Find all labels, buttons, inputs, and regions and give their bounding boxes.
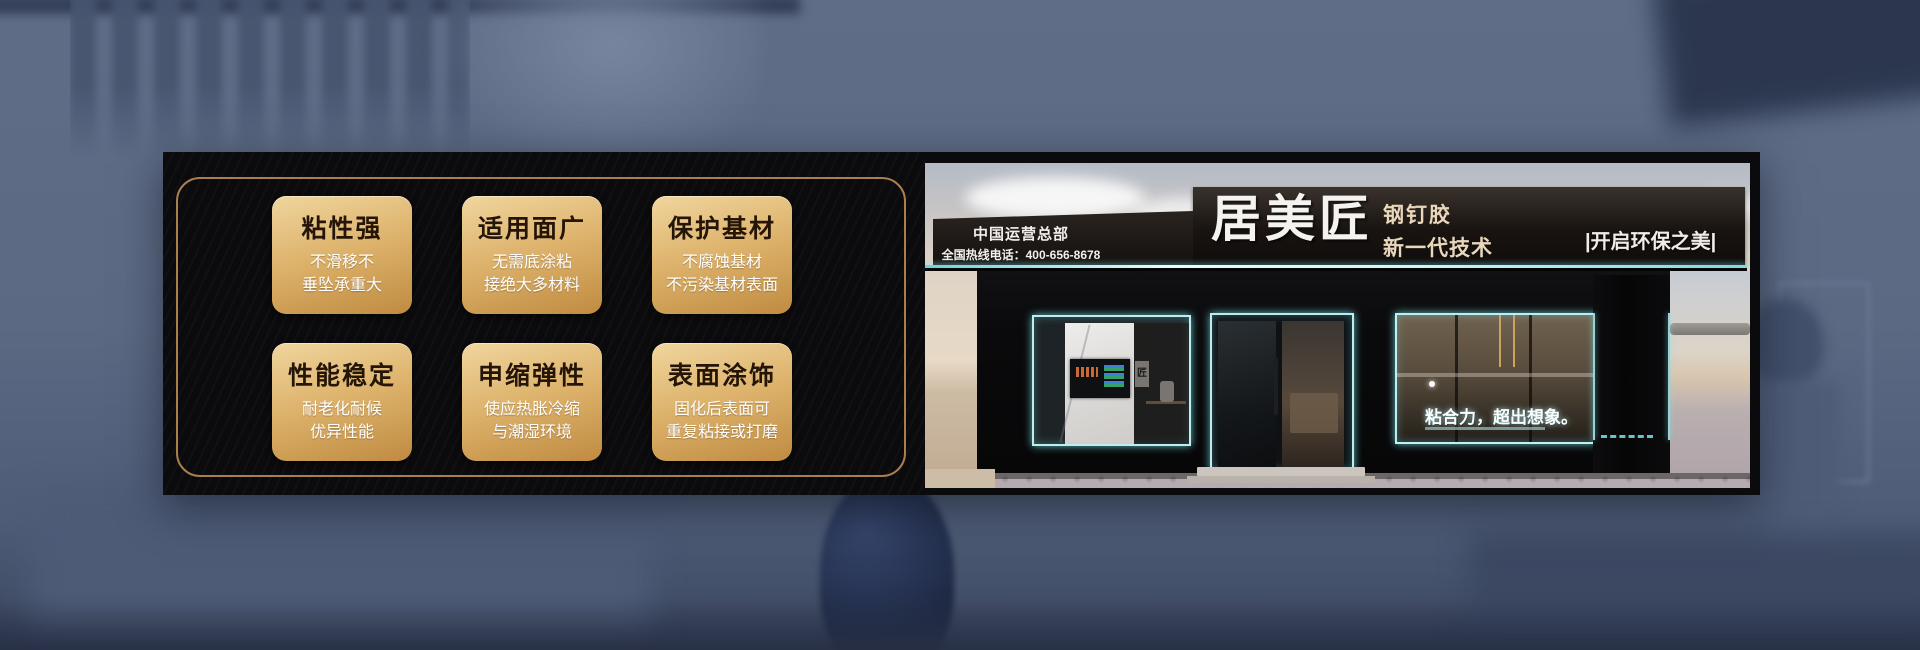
screen-content bbox=[1104, 365, 1124, 387]
door-interior-view bbox=[1290, 393, 1338, 433]
operations-hq-label: 中国运营总部 bbox=[933, 223, 1109, 244]
feature-card-title: 适用面广 bbox=[478, 209, 586, 245]
hotline-number: 全国热线电话：400-656-8678 bbox=[933, 246, 1109, 263]
feature-card-line: 固化后表面可 bbox=[674, 399, 770, 422]
feature-card-line: 不污染基材表面 bbox=[666, 275, 778, 298]
glass-tint bbox=[1134, 323, 1189, 444]
door-handle bbox=[1274, 357, 1278, 415]
screen-content bbox=[1076, 367, 1098, 377]
window-slogan: 粘合力，超出想象。 bbox=[1425, 403, 1605, 428]
feature-card-title: 粘性强 bbox=[301, 209, 382, 245]
entrance-step-lower bbox=[1187, 476, 1375, 483]
feature-card-line: 使应热胀冷缩 bbox=[484, 399, 580, 422]
entrance-door bbox=[1210, 313, 1354, 471]
brand-name: 居美匠 bbox=[1211, 193, 1373, 246]
feature-banner: 粘性强 不滑移不 垂坠承重大 适用面广 无需底涂粘 接绝大多材料 保护基材 不腐… bbox=[163, 152, 1760, 495]
feature-card-line: 与潮湿环境 bbox=[492, 422, 572, 445]
background-light-wall bbox=[430, 0, 760, 170]
feature-card-line: 垂坠承重大 bbox=[302, 275, 382, 298]
background-floor-shadow bbox=[0, 598, 1920, 650]
sand-strip bbox=[925, 469, 995, 488]
brand-subtitle-block: 钢钉胶 新一代技术 bbox=[1383, 199, 1493, 262]
feature-card-stable: 性能稳定 耐老化耐候 优异性能 bbox=[272, 343, 412, 461]
feature-card-protect-substrate: 保护基材 不腐蚀基材 不污染基材表面 bbox=[652, 196, 792, 314]
entrance-step bbox=[1197, 467, 1365, 476]
neon-dashes bbox=[1601, 435, 1653, 438]
feature-card-line: 重复粘接或打磨 bbox=[666, 422, 778, 445]
storefront-photo: 中国运营总部 全国热线电话：400-656-8678 居美匠 钢钉胶 新一代技术… bbox=[925, 163, 1750, 488]
neon-edge bbox=[1668, 313, 1670, 440]
background-plant-silhouette bbox=[1750, 298, 1824, 388]
operations-hq-block: 中国运营总部 全国热线电话：400-656-8678 bbox=[933, 223, 1109, 263]
feature-card-line: 接绝大多材料 bbox=[484, 275, 580, 298]
feature-card-surface-finish: 表面涂饰 固化后表面可 重复粘接或打磨 bbox=[652, 343, 792, 461]
feature-card-elastic: 申缩弹性 使应热胀冷缩 与潮湿环境 bbox=[462, 343, 602, 461]
promo-banner-stage: 粘性强 不滑移不 垂坠承重大 适用面广 无需底涂粘 接绝大多材料 保护基材 不腐… bbox=[0, 0, 1920, 650]
product-name: 钢钉胶 bbox=[1383, 199, 1493, 229]
facade-column-right bbox=[1593, 275, 1670, 473]
feature-card-wide-use: 适用面广 无需底涂粘 接绝大多材料 bbox=[462, 196, 602, 314]
feature-card-line: 优异性能 bbox=[310, 422, 374, 445]
eco-slogan: |开启环保之美| bbox=[1585, 225, 1743, 254]
feature-card-line: 无需底涂粘 bbox=[492, 252, 572, 275]
feature-card-line: 不滑移不 bbox=[310, 252, 374, 275]
feature-card-line: 不腐蚀基材 bbox=[682, 252, 762, 275]
feature-card-line: 耐老化耐候 bbox=[302, 399, 382, 422]
door-leaf-left bbox=[1218, 321, 1276, 469]
hanging-rod bbox=[1499, 315, 1501, 367]
bench bbox=[1670, 323, 1750, 335]
feature-card-title: 申缩弹性 bbox=[478, 356, 586, 392]
feature-card-adhesion: 粘性强 不滑移不 垂坠承重大 bbox=[272, 196, 412, 314]
shelf-band bbox=[1397, 373, 1595, 377]
background-louver-slats bbox=[70, 0, 470, 159]
window-slogan-underline bbox=[1425, 427, 1545, 430]
cloud bbox=[965, 177, 1145, 219]
desert-ground-left bbox=[925, 271, 977, 473]
lamp-dot bbox=[1429, 381, 1435, 387]
brand-block: 居美匠 钢钉胶 新一代技术 bbox=[1211, 193, 1493, 262]
feature-card-title: 性能稳定 bbox=[288, 356, 396, 392]
feature-card-title: 保护基材 bbox=[668, 209, 776, 245]
feature-card-title: 表面涂饰 bbox=[668, 356, 776, 392]
neon-edge bbox=[1593, 313, 1595, 440]
tagline: 新一代技术 bbox=[1383, 232, 1493, 262]
horizon-right bbox=[1670, 271, 1750, 473]
display-window-left: 匠 bbox=[1032, 315, 1191, 446]
hanging-rod bbox=[1513, 315, 1515, 367]
